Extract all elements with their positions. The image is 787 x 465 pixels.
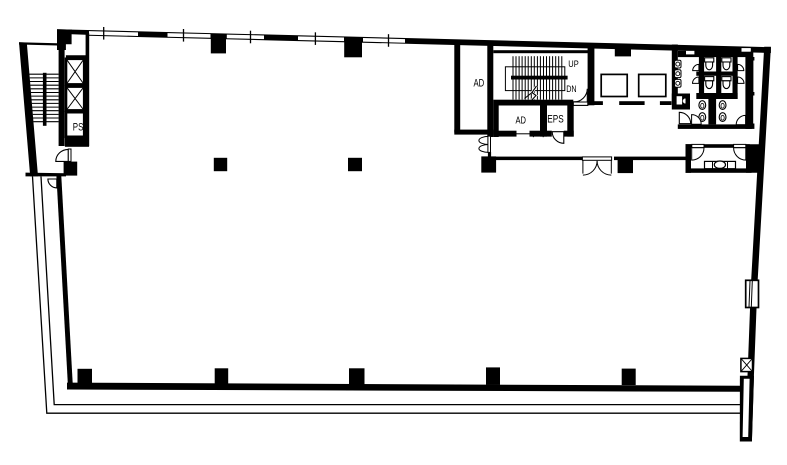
svg-text:AD: AD (474, 77, 485, 89)
svg-text:AD: AD (516, 115, 527, 127)
svg-text:EPS: EPS (547, 113, 564, 125)
svg-text:PS: PS (73, 121, 84, 133)
svg-text:DN: DN (566, 84, 576, 95)
svg-text:UP: UP (568, 59, 578, 70)
